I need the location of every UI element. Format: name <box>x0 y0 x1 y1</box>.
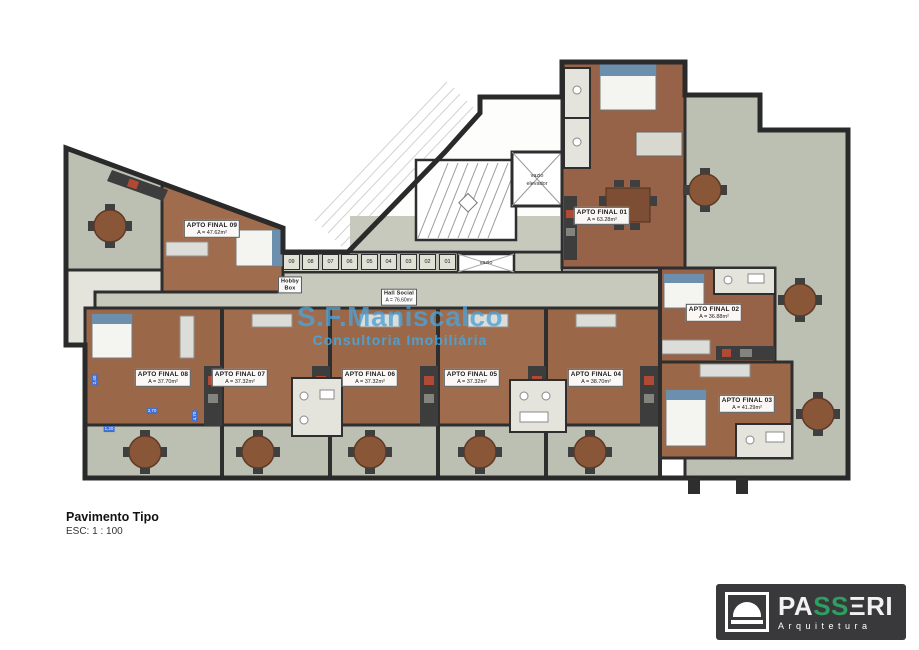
plan-scale: ESC: 1 : 100 <box>66 526 123 537</box>
sink <box>320 390 334 399</box>
toilet <box>746 436 754 444</box>
passeri-logo: PASSΞRI Arquitetura <box>716 584 906 640</box>
apartment-label-09: APTO FINAL 09 A = 47.62m² <box>184 220 240 238</box>
bed-headboard <box>600 64 656 76</box>
apartment-label-02: APTO FINAL 02 A = 36.88m² <box>686 304 742 322</box>
sink <box>566 228 575 236</box>
wall-stub <box>688 478 700 494</box>
apartment-label-05: APTO FINAL 05 A = 37.32m² <box>444 369 500 387</box>
apartment-02-bathroom <box>714 268 775 294</box>
dimension-chip: 2,40 <box>92 375 98 386</box>
dimension-chip: 1,20 <box>104 426 115 432</box>
sofa <box>576 314 616 327</box>
hobby-box-label: Hobby Box <box>278 276 302 293</box>
apartment-label-07: APTO FINAL 07 A = 37.32m² <box>212 369 268 387</box>
stove <box>722 349 731 357</box>
toilet <box>520 392 528 400</box>
toilet <box>724 276 732 284</box>
toilet <box>300 392 308 400</box>
hobby-box-05: 05 <box>361 254 378 270</box>
bathtub <box>766 432 784 442</box>
bed-headboard <box>664 274 704 283</box>
vazio-label: vazio <box>480 260 493 266</box>
hobby-box-09: 09 <box>283 254 300 270</box>
hobby-box-07: 07 <box>322 254 339 270</box>
toilet <box>573 86 581 94</box>
vazio-elevador-label-line2: elevador <box>526 181 547 187</box>
hobby-box-02: 02 <box>419 254 436 270</box>
logo-subtitle: Arquitetura <box>778 622 893 631</box>
bathtub <box>748 274 764 283</box>
plan-title: Pavimento Tipo <box>66 510 159 524</box>
dimension-chip: 3,70 <box>147 408 158 414</box>
sofa <box>700 364 750 377</box>
dimension-chip: 4,70 <box>192 411 198 422</box>
bathtub <box>520 412 548 422</box>
toilet <box>573 138 581 146</box>
sofa <box>662 340 710 354</box>
bed-headboard <box>92 314 132 324</box>
logo-wordmark: PASSΞRI <box>778 593 893 619</box>
arch-icon <box>725 592 769 632</box>
apartment-label-04: APTO FINAL 04 A = 38.70m² <box>568 369 624 387</box>
wall-stub <box>736 478 748 494</box>
watermark-brand: S.F.Maniscalco <box>297 301 503 333</box>
hobby-box-01: 01 <box>439 254 456 270</box>
sofa <box>252 314 292 327</box>
apartment-label-08: APTO FINAL 08 A = 37.70m² <box>135 369 191 387</box>
hobby-box-08: 08 <box>302 254 319 270</box>
apartment-label-06: APTO FINAL 06 A = 37.32m² <box>342 369 398 387</box>
bathroom-pod <box>510 380 566 432</box>
watermark-tagline: Consultoria Imobiliária <box>313 332 488 348</box>
sofa <box>180 316 194 358</box>
apartment-label-03: APTO FINAL 03 A = 41.29m² <box>719 395 775 413</box>
bathroom-pod <box>292 378 342 436</box>
hobby-box-03: 03 <box>400 254 417 270</box>
toilet <box>542 392 550 400</box>
bed-headboard <box>666 390 706 400</box>
toilet <box>300 416 308 424</box>
floor-plan-sheet: 09 08 07 06 05 04 03 02 01 APTO FINAL 09… <box>0 0 919 650</box>
hobby-box-04: 04 <box>380 254 397 270</box>
sink <box>740 349 752 357</box>
apartment-label-01: APTO FINAL 01 A = 63.28m² <box>574 207 630 225</box>
sofa <box>166 242 208 256</box>
hobby-box-06: 06 <box>341 254 358 270</box>
wardrobe <box>636 132 682 156</box>
vazio-elevador-label-line1: vazio <box>531 173 544 179</box>
